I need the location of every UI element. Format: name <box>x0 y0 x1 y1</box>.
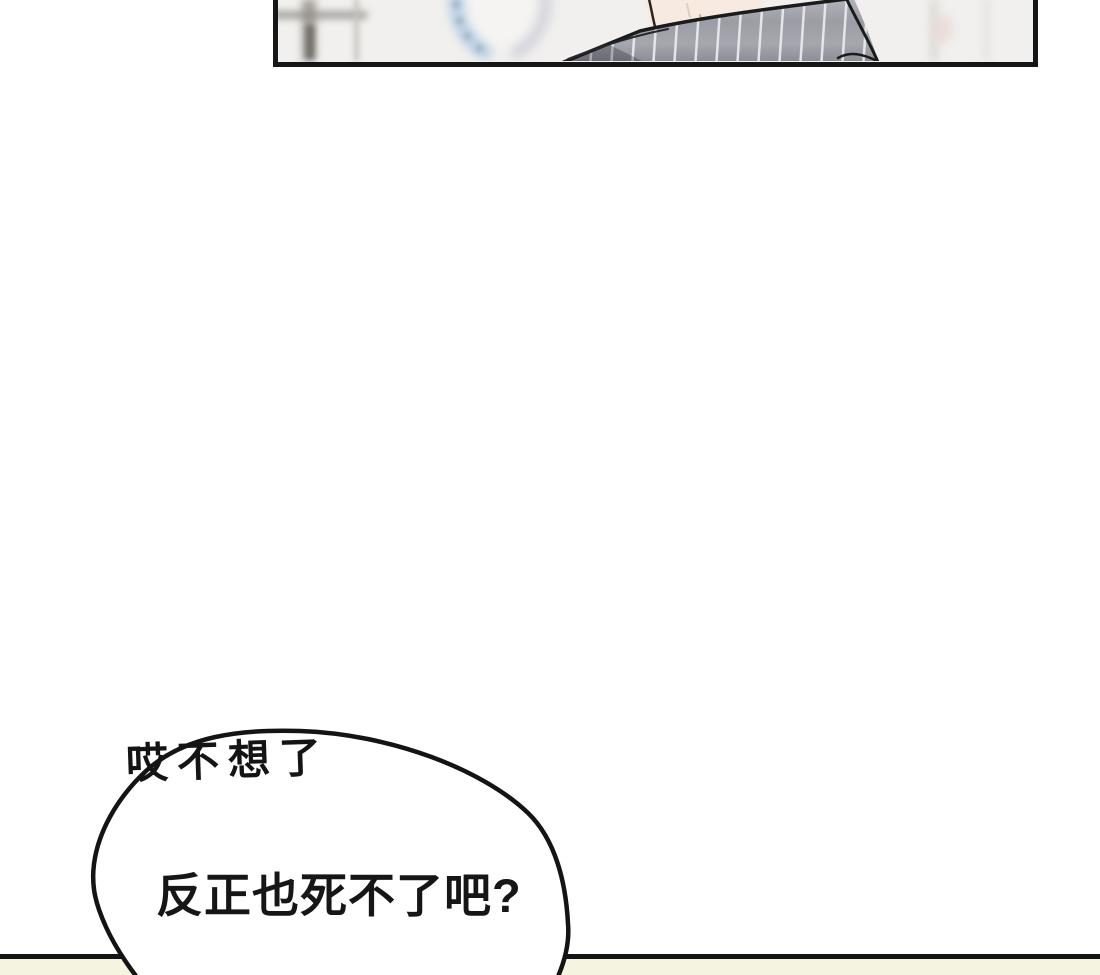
speech-annotation: 哎不想了 <box>125 736 330 785</box>
comic-page: { "comic": { "speech": { "annotation": "… <box>0 0 1100 975</box>
speech-bubble-text: 反正也死不了吧? <box>156 872 522 919</box>
speech-bubble <box>0 0 1100 975</box>
